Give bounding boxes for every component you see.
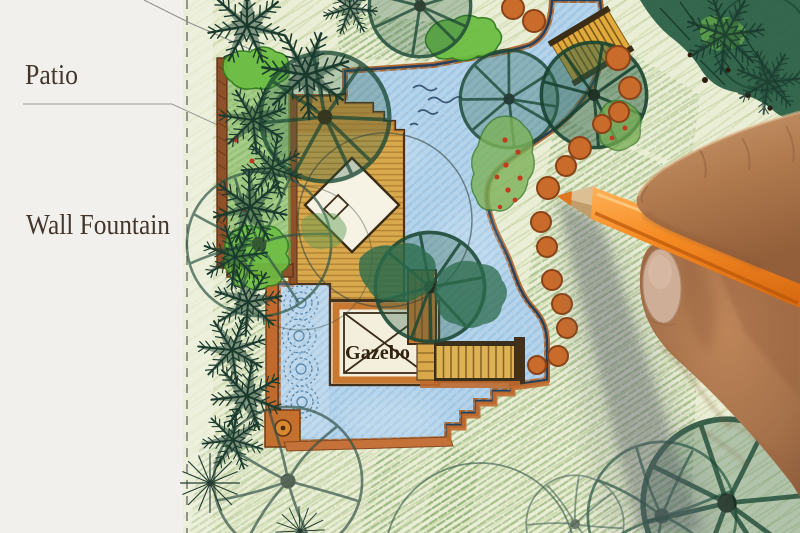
svg-text:Wall Fountain: Wall Fountain <box>26 209 170 241</box>
svg-text:Gazebo: Gazebo <box>345 342 410 364</box>
svg-text:Patio: Patio <box>25 59 78 91</box>
